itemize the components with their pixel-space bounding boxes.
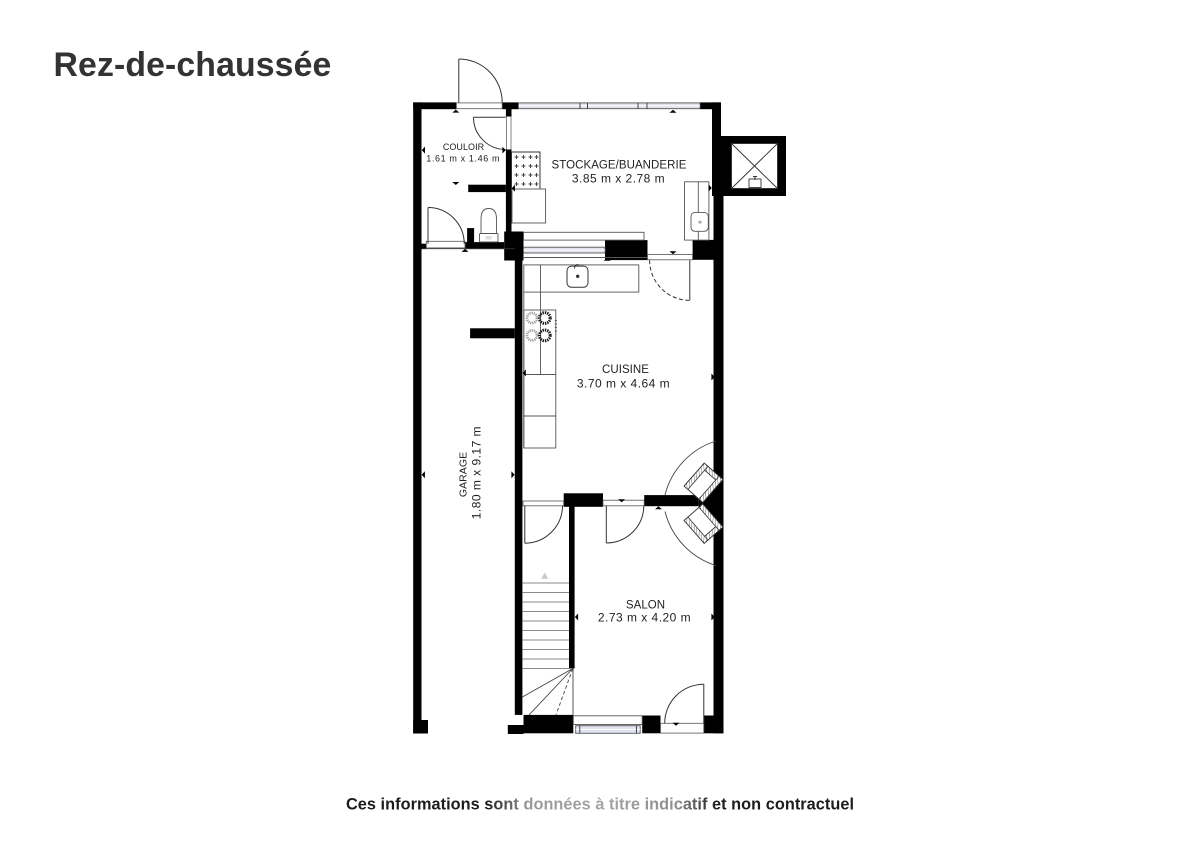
svg-text:1.80 m x 9.17 m: 1.80 m x 9.17 m: [470, 426, 484, 519]
svg-text:CUISINE: CUISINE: [602, 364, 649, 376]
svg-text:GARAGE: GARAGE: [457, 452, 469, 497]
svg-text:COULOIR: COULOIR: [443, 142, 485, 152]
svg-text:1.61 m x 1.46 m: 1.61 m x 1.46 m: [426, 154, 500, 164]
svg-text:Rez-de-chaussée: Rez-de-chaussée: [54, 46, 332, 84]
svg-text:3.85 m x 2.78 m: 3.85 m x 2.78 m: [572, 172, 665, 186]
svg-text:3.70 m x 4.64 m: 3.70 m x 4.64 m: [577, 377, 670, 391]
svg-text:2.73 m x 4.20 m: 2.73 m x 4.20 m: [598, 611, 691, 625]
svg-text:STOCKAGE/BUANDERIE: STOCKAGE/BUANDERIE: [552, 160, 687, 172]
